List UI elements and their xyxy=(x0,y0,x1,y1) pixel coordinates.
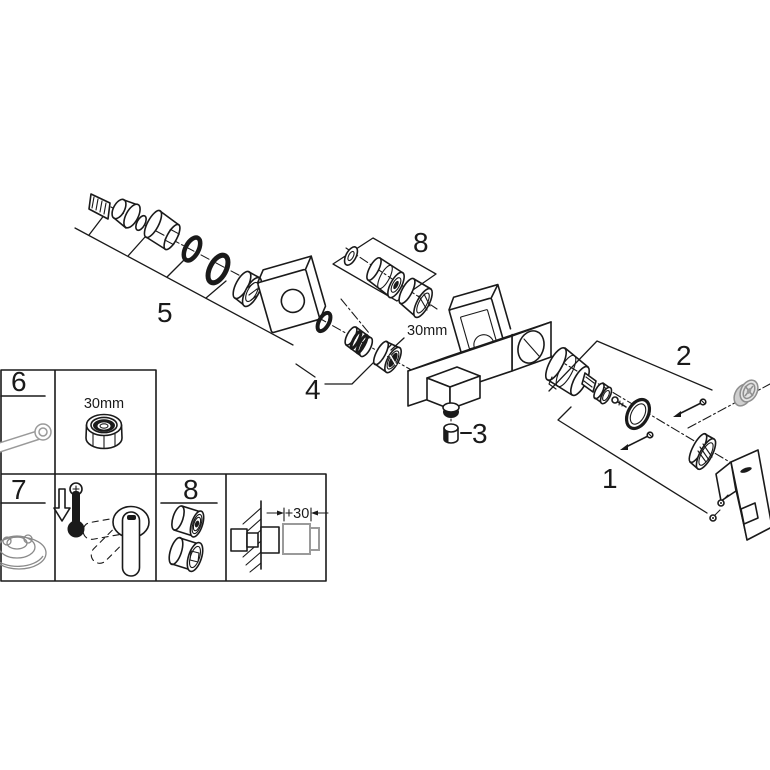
legend-nut-30mm xyxy=(86,415,122,449)
label-nut-size: 30mm xyxy=(407,323,447,339)
part-adapter-nipple xyxy=(343,325,375,358)
part-o-ring-small xyxy=(180,235,203,263)
part-o-ring-large xyxy=(204,252,232,286)
part-s-union-connector xyxy=(89,194,148,232)
exploded-parts-diagram: 5 8 30mm 4 3 2 1 6 30mm 7 xyxy=(0,0,770,770)
legend-panel: 6 30mm 7 xyxy=(0,366,328,581)
callout-2: 2 xyxy=(676,340,692,371)
lever-adjustment-diagram xyxy=(82,507,149,577)
part-flanged-bushing xyxy=(141,208,183,252)
legend-extension-label: +30 xyxy=(285,506,310,522)
legend-part-8a xyxy=(169,505,206,539)
extension-set-diagram: +30 xyxy=(231,501,328,572)
tool-wrench-icon xyxy=(0,424,51,453)
part-union-nut-30mm xyxy=(371,339,405,375)
callout-5: 5 xyxy=(157,297,173,328)
legend-nut-size-label: 30mm xyxy=(84,396,124,412)
callout-3: 3 xyxy=(472,418,488,449)
part-limiter-wheel xyxy=(731,377,762,409)
callout-4: 4 xyxy=(305,374,321,405)
part-outlet-spout xyxy=(427,367,480,418)
legend-box7-label: 7 xyxy=(11,474,27,505)
callout-1: 1 xyxy=(602,463,618,494)
legend-part-7 xyxy=(0,535,46,569)
legend-part-8b xyxy=(166,536,205,573)
legend-box6-label: 6 xyxy=(11,366,27,397)
part-lever-handle xyxy=(716,450,770,540)
part-aerator xyxy=(444,424,458,443)
part-escutcheon-ring xyxy=(622,396,654,433)
callout-8: 8 xyxy=(413,227,429,258)
thermometer-icon xyxy=(54,483,85,538)
legend-box8-label: 8 xyxy=(183,474,199,505)
part-cap xyxy=(686,432,719,472)
